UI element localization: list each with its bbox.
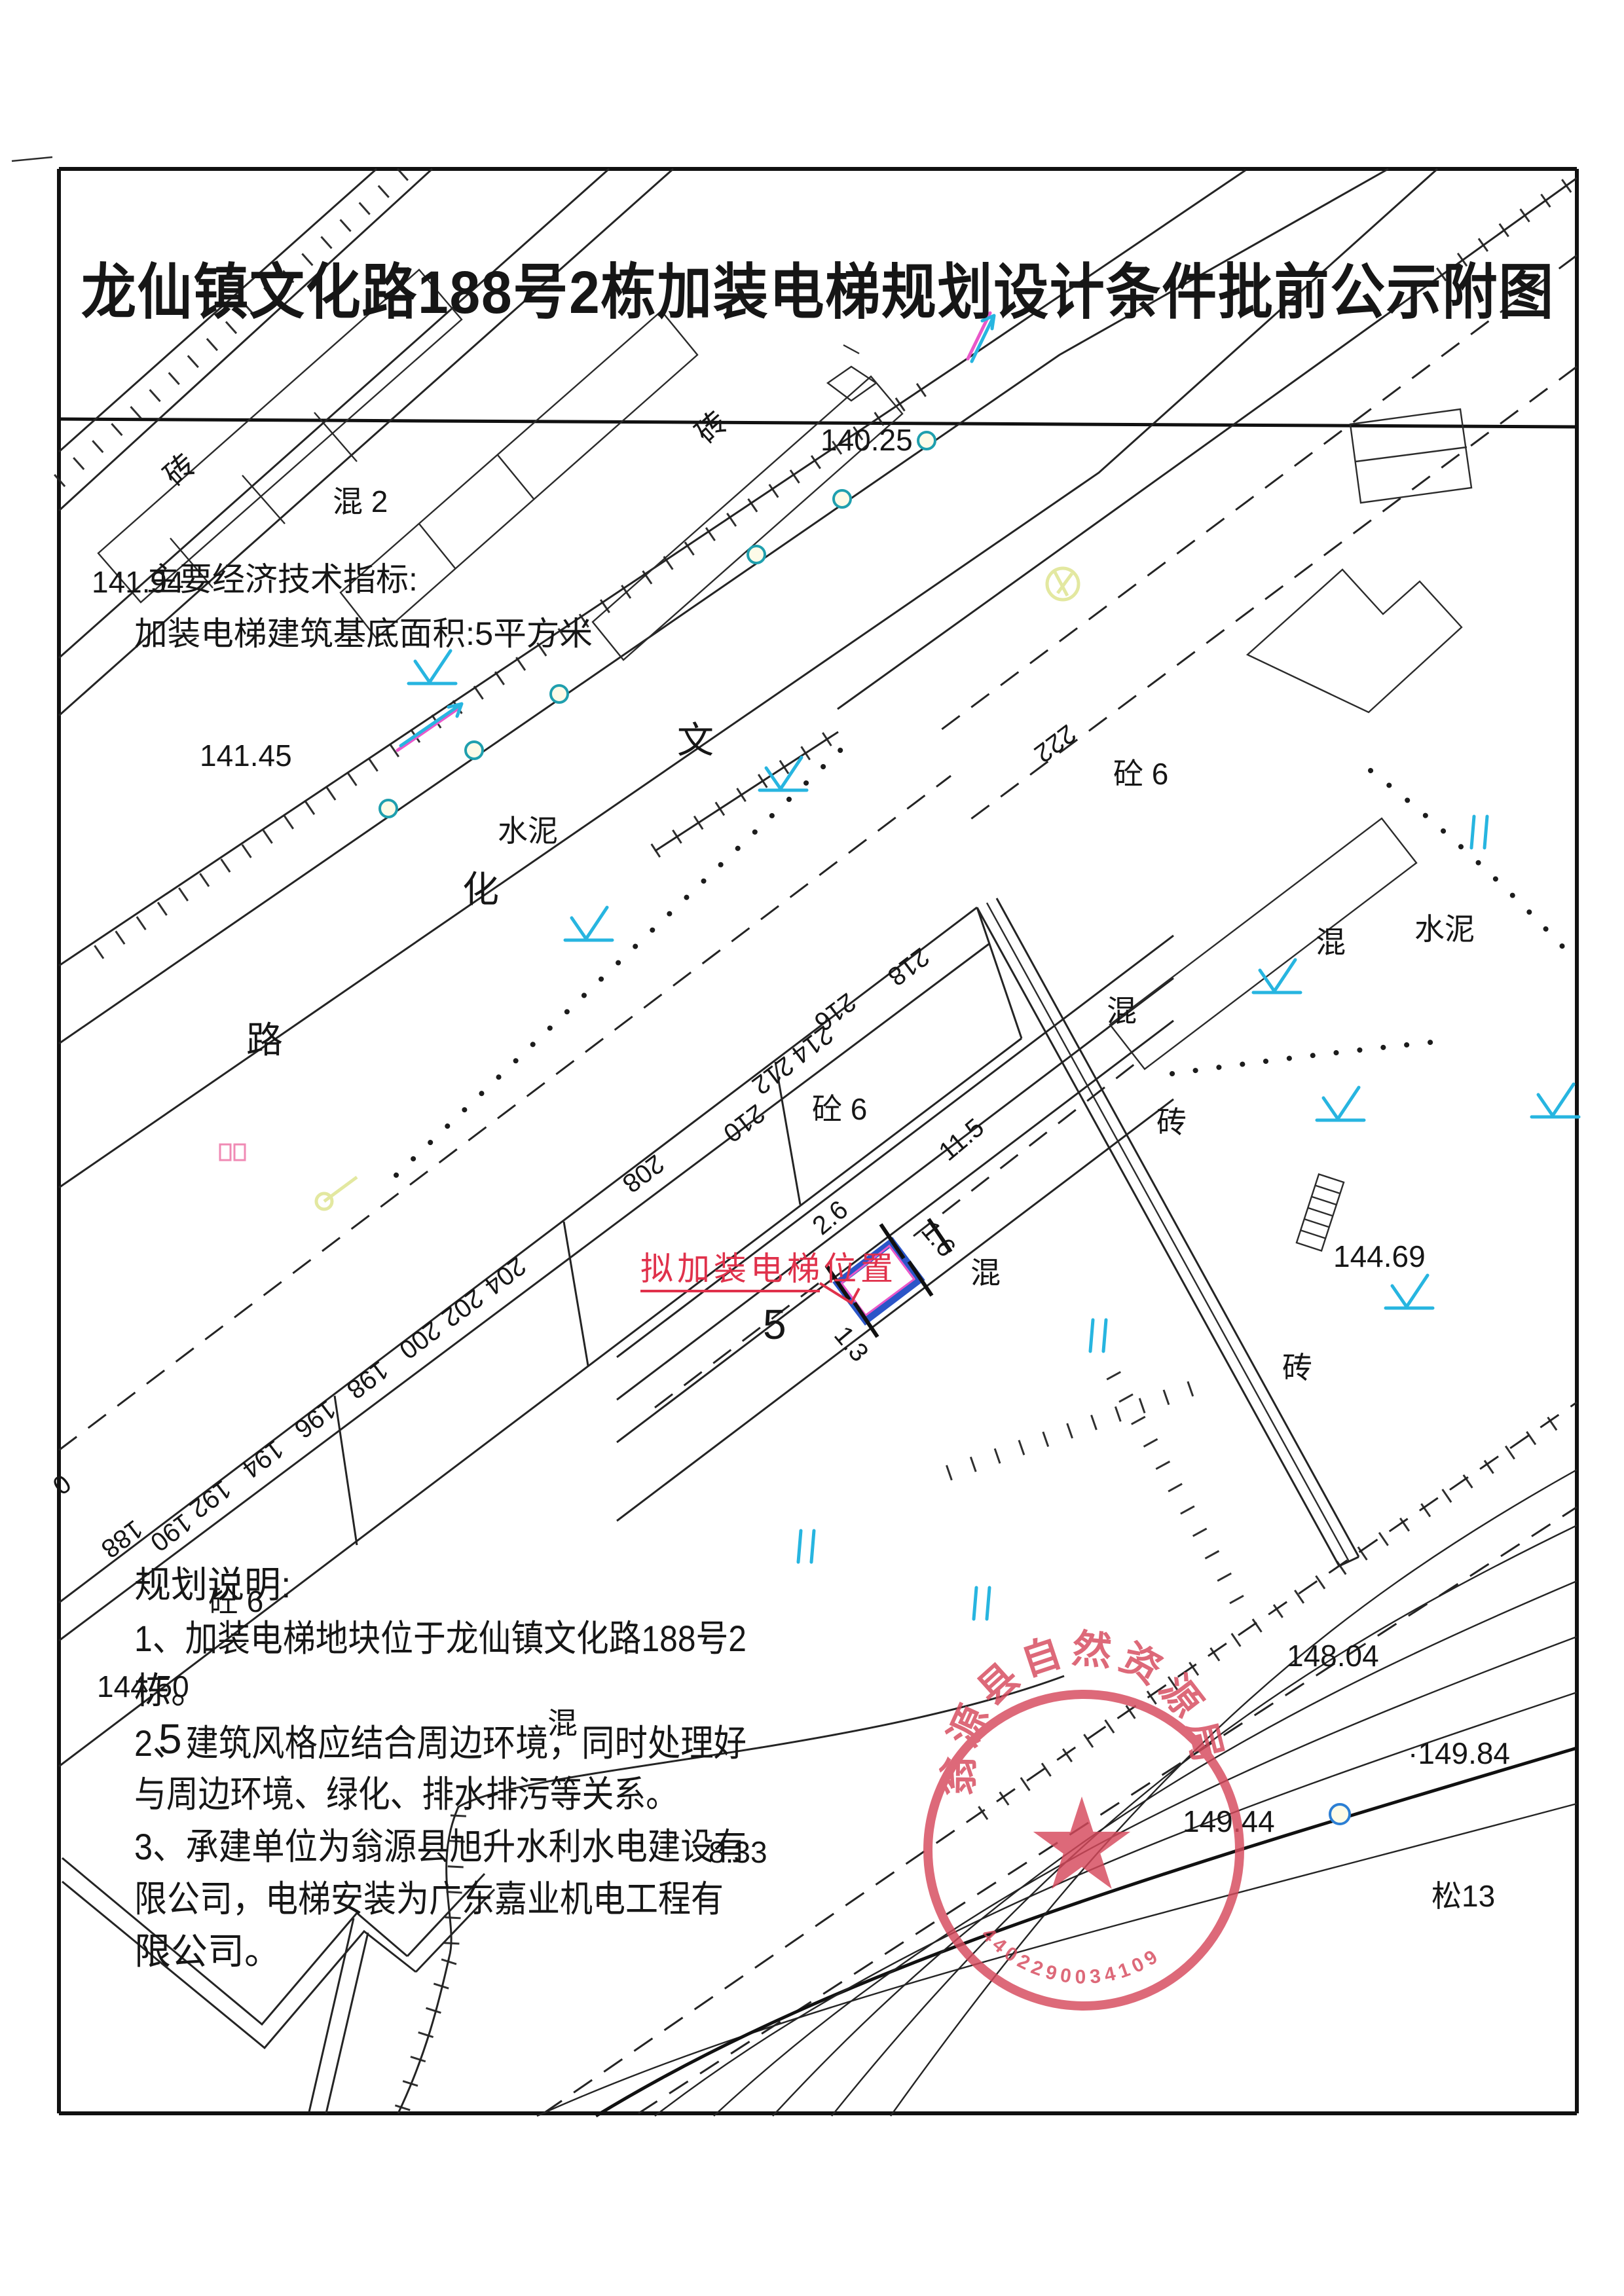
svg-text:限公司，电梯安装为广东嘉业机电工程有: 限公司，电梯安装为广东嘉业机电工程有 [134, 1878, 724, 1920]
label-mix2: 混 2 [333, 484, 388, 519]
street-char-hua: 化 [462, 869, 499, 910]
svg-text:208: 208 [617, 1149, 669, 1198]
tech-indicators-header: 主要经济技术指标: [147, 561, 418, 598]
svg-text:222: 222 [1029, 719, 1081, 768]
svg-text:192: 192 [184, 1474, 236, 1523]
contour-lines [537, 1470, 1577, 2116]
label-brick-1: 砖 [157, 447, 202, 492]
seal-agency-name: 翁源县自然资源局 [937, 1626, 1232, 1796]
page-title: 龙仙镇文化路188号2栋加装电梯规划设计条件批前公示附图 [81, 259, 1555, 326]
svg-text:栋。: 栋。 [134, 1670, 208, 1711]
tree-row-dotted-lines [396, 740, 1566, 1175]
elevation-144-69: 144.69 [1333, 1239, 1426, 1273]
elevation-140-25: 140.25 [821, 423, 913, 457]
svg-text:与周边环境、绿化、排水排污等关系。: 与周边环境、绿化、排水排污等关系。 [134, 1774, 678, 1815]
elevation-148-04: 148.04 [1287, 1639, 1379, 1673]
svg-text:218: 218 [882, 942, 934, 991]
house-numbers: 218 216 214 212 210 208 204 202 200 198 … [47, 719, 1081, 1563]
street-char-wen: 文 [677, 720, 714, 761]
road-lines [59, 169, 1577, 2113]
seal-code: 4402290034109 [977, 1923, 1165, 1988]
label-cement-1: 水泥 [498, 814, 558, 848]
tree-point-circle [1330, 1804, 1350, 1824]
grass-ii-symbols [798, 816, 1487, 1619]
dimension-labels: 11.5 2.6 1.6 1.3 5 5 [158, 1113, 989, 1762]
svg-text:3、承建单位为翁源县旭升水利水电建设有: 3、承建单位为翁源县旭升水利水电建设有 [134, 1826, 747, 1867]
svg-text:190: 190 [145, 1508, 197, 1557]
svg-text:0: 0 [47, 1468, 76, 1501]
svg-text:194: 194 [236, 1434, 289, 1484]
elevation-149-44: 149.44 [1183, 1804, 1275, 1838]
label-mix-3: 混 [970, 1256, 1001, 1290]
tree-symbols-yellow [316, 568, 1079, 1209]
svg-text:规划说明:: 规划说明: [134, 1564, 291, 1605]
elevation-141-45: 141.45 [200, 738, 292, 773]
label-conc6-2: 砼 6 [812, 1092, 867, 1126]
svg-text:翁源县自然资源局: 翁源县自然资源局 [937, 1626, 1232, 1796]
pink-utility-symbol [220, 1144, 245, 1160]
flow-arrow-road [397, 704, 462, 750]
svg-text:2、建筑风格应结合周边环境，同时处理好: 2、建筑风格应结合周边环境，同时处理好 [134, 1722, 747, 1764]
seal-star [1033, 1796, 1130, 1889]
label-brick-4: 砖 [1282, 1351, 1312, 1385]
label-brick-3: 砖 [1156, 1105, 1187, 1139]
grass-symbols [409, 651, 1579, 1308]
svg-text:5: 5 [763, 1301, 786, 1348]
scanned-plan-sheet: 龙仙镇文化路188号2栋加装电梯规划设计条件批前公示附图 141.94 主要经济… [0, 0, 1624, 2296]
planning-notes: 规划说明: 1、加装电梯地块位于龙仙镇文化路188号2 栋。 2、建筑风格应结合… [134, 1564, 747, 1972]
svg-text:188: 188 [96, 1514, 148, 1563]
tech-area-line: 加装电梯建筑基底面积:5平方米 [134, 615, 593, 652]
label-mix-2: 混 [1316, 925, 1346, 959]
svg-text:11.5: 11.5 [934, 1113, 990, 1167]
label-pine13: 松13 [1431, 1879, 1495, 1913]
label-conc6-1: 砼 6 [1113, 757, 1168, 791]
svg-text:限公司。: 限公司。 [134, 1931, 281, 1972]
svg-text:1.3: 1.3 [828, 1321, 874, 1368]
svg-text:4402290034109: 4402290034109 [977, 1923, 1165, 1988]
label-brick-2: 砖 [689, 405, 734, 450]
label-cement-2: 水泥 [1414, 912, 1475, 946]
proposed-elevator-label: 拟加装电梯位置 [640, 1250, 897, 1287]
elevation-149-84: ·149.84 [1408, 1736, 1510, 1770]
svg-text:1.6: 1.6 [915, 1216, 961, 1263]
svg-text:2.6: 2.6 [807, 1195, 854, 1240]
building-outlines [98, 270, 1471, 1561]
label-mix-1: 混 [1107, 994, 1137, 1028]
street-char-lu: 路 [246, 1019, 283, 1061]
svg-text:1、加装电梯地块位于龙仙镇文化路188号2: 1、加装电梯地块位于龙仙镇文化路188号2 [134, 1618, 747, 1659]
